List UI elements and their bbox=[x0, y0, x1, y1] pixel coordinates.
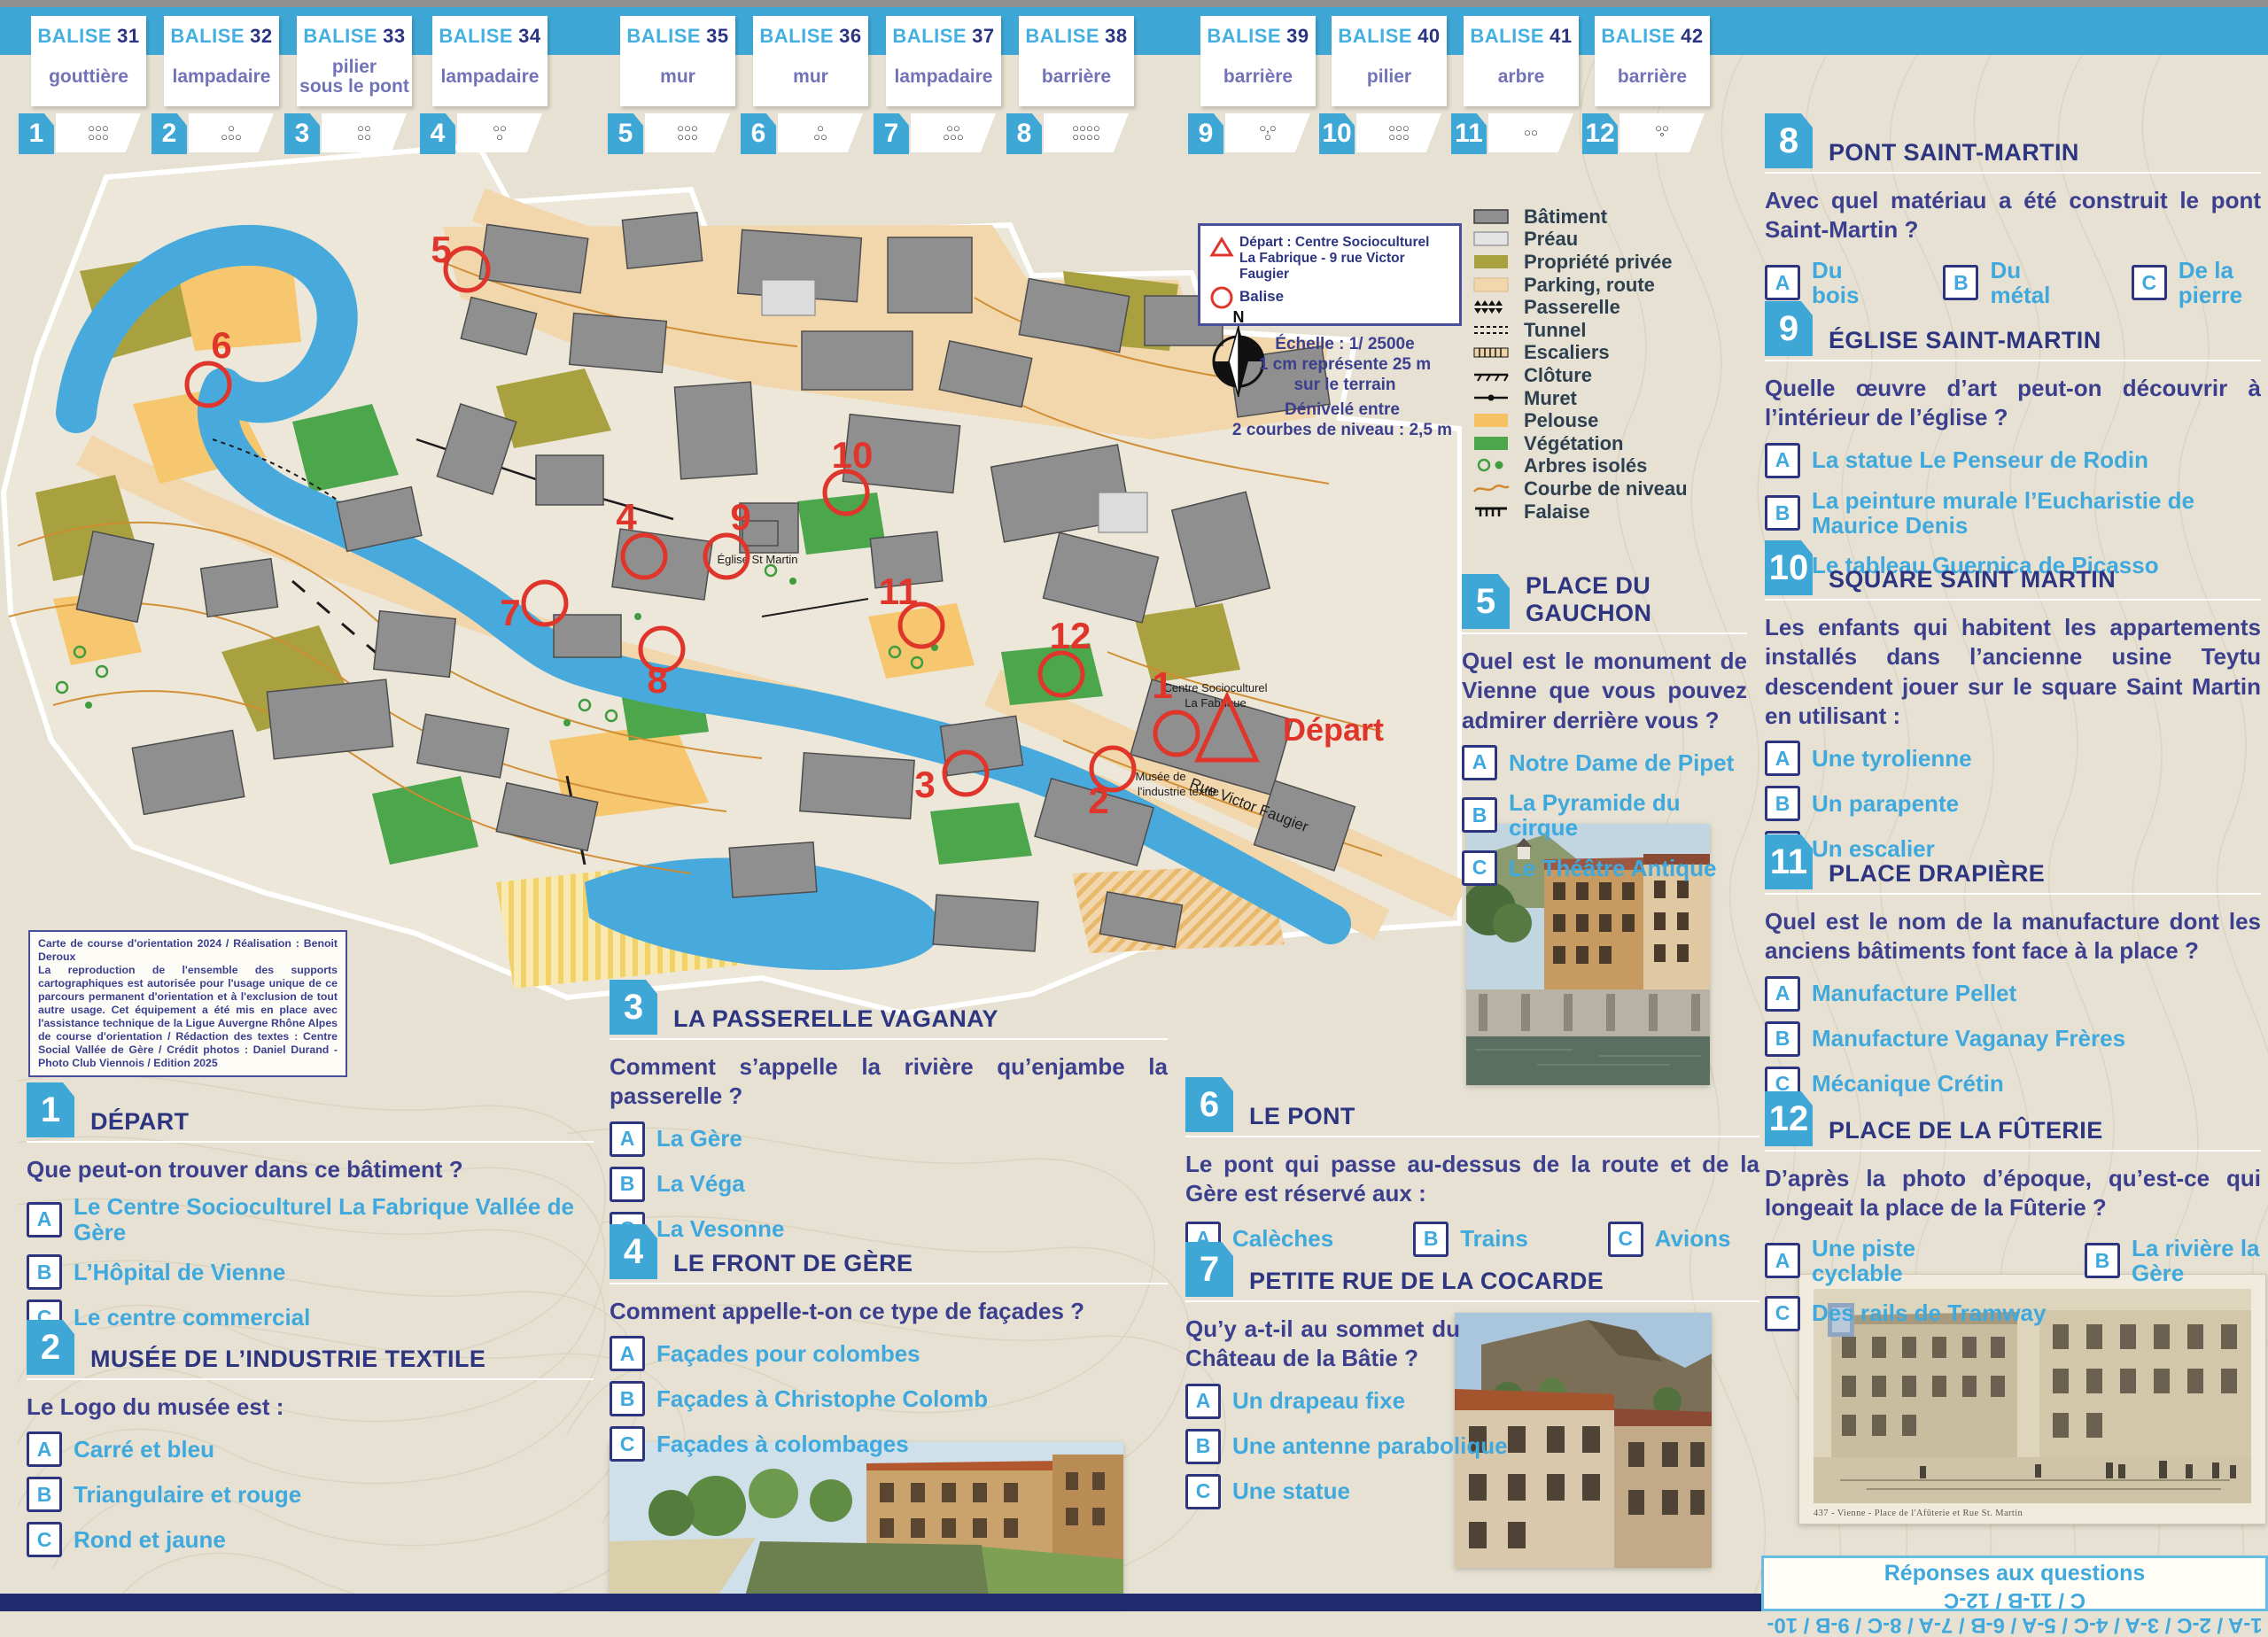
balise-badge-number: 2 bbox=[151, 113, 187, 154]
control-number: 1 bbox=[1152, 664, 1172, 706]
legend-swatch-icon bbox=[1472, 390, 1511, 407]
map-credits: Carte de course d'orientation 2024 / Réa… bbox=[28, 930, 347, 1077]
answer-option: B Un parapente bbox=[1765, 786, 2261, 821]
answer-letter-box: A bbox=[1185, 1384, 1221, 1419]
legend-swatch-icon bbox=[1472, 344, 1511, 361]
question-header: 10 SQUARE SAINT MARTIN bbox=[1765, 540, 2261, 595]
control-number: 3 bbox=[914, 764, 935, 805]
question-text: Qu’y a-t-il au sommet du Château de la B… bbox=[1185, 1315, 1460, 1374]
legend-label: Tunnel bbox=[1524, 319, 1586, 342]
legend-label: Escaliers bbox=[1524, 341, 1610, 364]
answer-letter-box: C bbox=[1462, 850, 1497, 886]
balise-card-header: BALISE33 bbox=[303, 25, 405, 48]
legend-row: Propriété privée bbox=[1472, 251, 1688, 274]
question-answers: A Carré et bleu B Triangulaire et rouge … bbox=[27, 1431, 594, 1557]
legend-swatch-icon bbox=[1472, 253, 1511, 271]
answers-box-line: 1-A / 2-C / 3-A / 4-C / 5-A / 6-B / 7-A … bbox=[1764, 1587, 2265, 1637]
question-text: Quel est le monument de Vienne que vous … bbox=[1462, 647, 1747, 735]
legend-label: Végétation bbox=[1524, 432, 1623, 455]
balise-card: BALISE37 lampadaire bbox=[886, 16, 1001, 106]
balise-number: 36 bbox=[839, 25, 861, 47]
balise-word: BALISE bbox=[170, 25, 245, 47]
balise-description: arbre bbox=[1498, 48, 1545, 106]
map-label-eglise: Église St Martin bbox=[717, 553, 797, 566]
balise-badge: 7 ○○ ○○○ bbox=[874, 113, 996, 154]
legend-label: Parking, route bbox=[1524, 274, 1655, 297]
balise-card-unit: BALISE37 lampadaire 7 ○○ ○○○ bbox=[886, 16, 1001, 106]
question-number-tag: 4 bbox=[610, 1224, 657, 1279]
question-number-tag: 8 bbox=[1765, 113, 1813, 168]
answer-letter-box: A bbox=[27, 1202, 62, 1237]
control-symbol-icon: ○○○○ ○○○○ bbox=[1044, 113, 1129, 152]
start-legend-depart: Départ : Centre Socioculturel La Fabriqu… bbox=[1239, 235, 1450, 282]
legend-swatch-icon bbox=[1472, 276, 1511, 294]
question-text: Le pont qui passe au-dessus de la route … bbox=[1185, 1150, 1759, 1209]
legend-label: Arbres isolés bbox=[1524, 454, 1647, 477]
control-symbol-icon: ○○ bbox=[1488, 113, 1573, 152]
question-number-tag: 6 bbox=[1185, 1077, 1233, 1132]
map-label-centre-1: Centre Socioculturel bbox=[1163, 681, 1267, 694]
legend-swatch-icon bbox=[1472, 480, 1511, 498]
map-scale-text: Échelle : 1/ 2500e 1 cm représente 25 m … bbox=[1256, 335, 1433, 395]
map-denivele-text: Dénivelé entre 2 courbes de niveau : 2,5… bbox=[1231, 400, 1453, 441]
question-text: Comment appelle-t-on ce type de façades … bbox=[610, 1297, 1168, 1326]
control-symbol-icon: ○○○ ○○○ bbox=[645, 113, 730, 152]
balise-card-header: BALISE36 bbox=[759, 25, 861, 48]
control-symbol-icon: ○○○ ○○○ bbox=[56, 113, 141, 152]
balise-badge-number: 1 bbox=[19, 113, 54, 154]
answer-label: Le Centre Socioculturel La Fabrique Vall… bbox=[74, 1194, 594, 1245]
answer-option: B La Pyramide du cirque bbox=[1462, 790, 1747, 841]
question-title: PLACE DRAPIÈRE bbox=[1829, 860, 2045, 888]
legend-swatch-icon bbox=[1472, 367, 1511, 384]
control-symbol-icon: ○ ○○○ bbox=[189, 113, 274, 152]
answer-option: B Façades à Christophe Colomb bbox=[610, 1381, 1168, 1416]
question-block-6: 6 LE PONT Le pont qui passe au-dessus de… bbox=[1185, 1077, 1759, 1257]
start-label: Départ bbox=[1283, 711, 1384, 748]
balise-word: BALISE bbox=[1338, 25, 1412, 47]
question-title: ÉGLISE SAINT-MARTIN bbox=[1829, 327, 2101, 354]
legend-row: Muret bbox=[1472, 387, 1688, 410]
divider bbox=[1185, 1300, 1759, 1302]
question-title: DÉPART bbox=[90, 1108, 189, 1136]
control-number: 9 bbox=[730, 496, 750, 538]
balise-word: BALISE bbox=[1470, 25, 1544, 47]
answer-label: Rond et jaune bbox=[74, 1527, 226, 1553]
divider bbox=[610, 1038, 1168, 1040]
control-symbol-icon: ○○ ○○ bbox=[322, 113, 407, 152]
map-label-musee-1: Musée de bbox=[1135, 770, 1185, 783]
question-text: Comment s’appelle la rivière qu’enjambe … bbox=[610, 1052, 1168, 1112]
balise-card-unit: BALISE34 lampadaire 4 ○○ ○ bbox=[432, 16, 548, 106]
divider bbox=[1765, 172, 2261, 174]
balise-number: 38 bbox=[1105, 25, 1127, 47]
answer-letter-box: A bbox=[1765, 976, 1800, 1012]
balise-badge: 11 ○○ bbox=[1451, 113, 1573, 154]
answer-letter-box: A bbox=[610, 1121, 645, 1157]
balise-badge-number: 9 bbox=[1188, 113, 1223, 154]
question-block-10: 10 SQUARE SAINT MARTIN Les enfants qui h… bbox=[1765, 540, 2261, 866]
legend-swatch-icon bbox=[1472, 230, 1511, 248]
answer-letter-box: A bbox=[1765, 1243, 1800, 1278]
legend-row: Végétation bbox=[1472, 432, 1688, 455]
question-block-2: 2 MUSÉE DE L’INDUSTRIE TEXTILE Le Logo d… bbox=[27, 1320, 594, 1557]
answers-box-title: Réponses aux questions bbox=[1764, 1561, 2265, 1587]
legend-label: Courbe de niveau bbox=[1524, 477, 1688, 500]
start-legend-balise: Balise bbox=[1239, 283, 1284, 306]
balise-card-header: BALISE32 bbox=[170, 25, 272, 48]
legend-row: Falaise bbox=[1472, 500, 1688, 524]
balise-badge: 1 ○○○ ○○○ bbox=[19, 113, 141, 154]
answer-option: A Un drapeau fixe bbox=[1185, 1384, 1759, 1419]
balise-badge: 6 ○ ○○ bbox=[741, 113, 863, 154]
answer-letter-box: A bbox=[27, 1431, 62, 1467]
control-symbol-icon: ○○○ ○○○ bbox=[1356, 113, 1441, 152]
answer-letter-box: A bbox=[1765, 265, 1800, 300]
question-text: Les enfants qui habitent les appartement… bbox=[1765, 613, 2261, 731]
question-header: 1 DÉPART bbox=[27, 1082, 594, 1137]
question-title: PONT SAINT-MARTIN bbox=[1829, 139, 2079, 167]
balise-description: gouttière bbox=[49, 48, 128, 106]
divider bbox=[1765, 599, 2261, 601]
legend-label: Muret bbox=[1524, 387, 1577, 410]
balise-card-unit: BALISE35 mur 5 ○○○ ○○○ bbox=[620, 16, 735, 106]
control-number: 10 bbox=[832, 434, 874, 476]
answer-option: C Rond et jaune bbox=[27, 1522, 594, 1557]
question-title: MUSÉE DE L’INDUSTRIE TEXTILE bbox=[90, 1346, 485, 1373]
question-number-tag: 12 bbox=[1765, 1091, 1813, 1146]
balise-word: BALISE bbox=[439, 25, 513, 47]
balise-description: barrière bbox=[1618, 48, 1687, 106]
control-number: 4 bbox=[616, 496, 637, 538]
question-header: 12 PLACE DE LA FÛTERIE bbox=[1765, 1091, 2261, 1146]
answer-letter-box: B bbox=[610, 1167, 645, 1202]
question-title: SQUARE SAINT MARTIN bbox=[1829, 566, 2116, 594]
balise-word: BALISE bbox=[759, 25, 834, 47]
answer-label: Une piste cyclable bbox=[1812, 1236, 1952, 1286]
question-answers: A Un drapeau fixe B Une antenne paraboli… bbox=[1185, 1384, 1759, 1509]
answer-letter-box: B bbox=[1765, 1021, 1800, 1057]
balise-card: BALISE42 barrière bbox=[1595, 16, 1710, 106]
question-block-12: 12 PLACE DE LA FÛTERIE D’après la photo … bbox=[1765, 1091, 2261, 1331]
question-block-1: 1 DÉPART Que peut-on trouver dans ce bât… bbox=[27, 1082, 594, 1335]
legend-row: Bâtiment bbox=[1472, 206, 1688, 229]
answer-option: B Manufacture Vaganay Frères bbox=[1765, 1021, 2261, 1057]
question-title: PETITE RUE DE LA COCARDE bbox=[1249, 1268, 1604, 1295]
map-legend: Bâtiment Préau Propriété privée Parking,… bbox=[1472, 206, 1688, 523]
question-number-tag: 10 bbox=[1765, 540, 1813, 595]
balise-card-unit: BALISE39 barrière 9 ○,○ ○ bbox=[1200, 16, 1316, 106]
balise-badge-number: 10 bbox=[1319, 113, 1355, 154]
answer-label: La statue Le Penseur de Rodin bbox=[1812, 447, 2148, 473]
answer-option: A Le Centre Socioculturel La Fabrique Va… bbox=[27, 1194, 594, 1245]
answer-label: Triangulaire et rouge bbox=[74, 1482, 301, 1508]
question-number-tag: 7 bbox=[1185, 1242, 1233, 1297]
balise-number: 39 bbox=[1286, 25, 1309, 47]
answer-letter-box: B bbox=[1765, 495, 1800, 531]
divider bbox=[1765, 1150, 2261, 1152]
answer-label: La Gère bbox=[656, 1126, 742, 1152]
answer-label: Manufacture Vaganay Frères bbox=[1812, 1026, 2125, 1051]
balise-word: BALISE bbox=[626, 25, 701, 47]
legend-row: Pelouse bbox=[1472, 409, 1688, 432]
balise-number: 42 bbox=[1681, 25, 1703, 47]
question-number-tag: 11 bbox=[1765, 834, 1813, 889]
answer-letter-box: B bbox=[27, 1477, 62, 1512]
balise-number: 31 bbox=[117, 25, 139, 47]
answer-option: C Une statue bbox=[1185, 1474, 1759, 1509]
answer-label: Façades à Christophe Colomb bbox=[656, 1386, 988, 1412]
balise-card: BALISE35 mur bbox=[620, 16, 735, 106]
balise-description: pilier sous le pont bbox=[299, 48, 409, 106]
control-symbol-icon: ○ ○○ bbox=[778, 113, 863, 152]
answer-label: Le Théâtre Antique bbox=[1509, 856, 1717, 881]
balise-badge: 8 ○○○○ ○○○○ bbox=[1006, 113, 1129, 154]
balise-badge: 9 ○,○ ○ bbox=[1188, 113, 1310, 154]
answer-option: B Triangulaire et rouge bbox=[27, 1477, 594, 1512]
question-header: 7 PETITE RUE DE LA COCARDE bbox=[1185, 1242, 1759, 1297]
balise-number: 35 bbox=[706, 25, 728, 47]
answer-label: La peinture murale l’Eucharistie de Maur… bbox=[1812, 488, 2261, 539]
answer-letter-box: B bbox=[1765, 786, 1800, 821]
answer-option: A La Gère bbox=[610, 1121, 1168, 1157]
answer-label: Façades pour colombes bbox=[656, 1341, 920, 1367]
control-symbol-icon: ○○ ○○○ bbox=[911, 113, 996, 152]
legend-swatch-icon bbox=[1472, 457, 1511, 475]
answer-label: Notre Dame de Pipet bbox=[1509, 750, 1734, 776]
answers-box: Réponses aux questions 1-A / 2-C / 3-A /… bbox=[1761, 1556, 2268, 1611]
question-header: 4 LE FRONT DE GÈRE bbox=[610, 1224, 1168, 1279]
balise-card-header: BALISE34 bbox=[439, 25, 540, 48]
answer-label: Un parapente bbox=[1812, 791, 1959, 817]
answer-letter-box: B bbox=[1462, 797, 1497, 833]
control-number: 11 bbox=[879, 570, 918, 612]
balise-number: 40 bbox=[1417, 25, 1440, 47]
balise-number: 34 bbox=[518, 25, 540, 47]
question-number-tag: 2 bbox=[27, 1320, 74, 1375]
balise-badge-number: 8 bbox=[1006, 113, 1042, 154]
balise-badge: 2 ○ ○○○ bbox=[151, 113, 274, 154]
answer-label: Une tyrolienne bbox=[1812, 746, 1972, 772]
question-header: 8 PONT SAINT-MARTIN bbox=[1765, 113, 2261, 168]
control-symbol-icon: ○○ ○ bbox=[457, 113, 542, 152]
balise-card-header: BALISE41 bbox=[1470, 25, 1572, 48]
map-label-centre-2: La Fabrique bbox=[1184, 696, 1246, 710]
balise-badge-number: 11 bbox=[1451, 113, 1487, 154]
legend-label: Pelouse bbox=[1524, 409, 1598, 432]
answer-option: C Des rails de Tramway bbox=[1765, 1296, 2261, 1331]
balise-badge: 10 ○○○ ○○○ bbox=[1319, 113, 1441, 154]
answer-option: B La peinture murale l’Eucharistie de Ma… bbox=[1765, 488, 2261, 539]
balise-number: 32 bbox=[250, 25, 272, 47]
answer-letter-box: A bbox=[1462, 745, 1497, 780]
balise-card-header: BALISE35 bbox=[626, 25, 728, 48]
legend-row: Préau bbox=[1472, 229, 1688, 252]
answer-letter-box: B bbox=[2085, 1243, 2120, 1278]
balise-number: 41 bbox=[1550, 25, 1572, 47]
balise-description: lampadaire bbox=[441, 48, 540, 106]
answer-label: La Pyramide du cirque bbox=[1509, 790, 1747, 841]
balise-card: BALISE34 lampadaire bbox=[432, 16, 548, 106]
question-text: Quel est le nom de la manufacture dont l… bbox=[1765, 907, 2261, 966]
balise-number: 33 bbox=[383, 25, 405, 47]
answer-letter-box: A bbox=[610, 1336, 645, 1371]
postcard-caption: 437 - Vienne - Place de l'Afûterie et Ru… bbox=[1814, 1509, 2251, 1518]
legend-row: Passerelle bbox=[1472, 296, 1688, 319]
answer-label: L’Hôpital de Vienne bbox=[74, 1260, 285, 1285]
answer-option: A Une tyrolienne bbox=[1765, 741, 2261, 776]
photo-front-de-gere bbox=[610, 1442, 1123, 1606]
question-text: Que peut-on trouver dans ce bâtiment ? bbox=[27, 1155, 594, 1184]
balise-card: BALISE33 pilier sous le pont bbox=[297, 16, 412, 106]
legend-label: Préau bbox=[1524, 228, 1578, 251]
question-header: 6 LE PONT bbox=[1185, 1077, 1759, 1132]
balise-card-unit: BALISE33 pilier sous le pont 3 ○○ ○○ bbox=[297, 16, 412, 106]
answer-label: Façades à colombages bbox=[656, 1431, 909, 1457]
control-number: 2 bbox=[1088, 780, 1108, 821]
balise-description: mur bbox=[660, 48, 695, 106]
balise-card-header: BALISE38 bbox=[1025, 25, 1127, 48]
control-number: 7 bbox=[500, 592, 520, 633]
balise-card: BALISE40 pilier bbox=[1332, 16, 1447, 106]
divider bbox=[1765, 360, 2261, 361]
question-title: LA PASSERELLE VAGANAY bbox=[673, 1005, 998, 1033]
divider bbox=[1185, 1136, 1759, 1137]
legend-label: Passerelle bbox=[1524, 296, 1620, 319]
divider bbox=[27, 1141, 594, 1143]
question-number-tag: 5 bbox=[1462, 574, 1510, 629]
divider bbox=[27, 1378, 594, 1380]
balise-card: BALISE38 barrière bbox=[1019, 16, 1134, 106]
balise-description: pilier bbox=[1367, 48, 1411, 106]
answer-option: B La rivière la Gère bbox=[2085, 1236, 2261, 1286]
question-block-7: 7 PETITE RUE DE LA COCARDE Qu’y a-t-il a… bbox=[1185, 1242, 1759, 1509]
balise-card-header: BALISE40 bbox=[1338, 25, 1440, 48]
answer-option: A La statue Le Penseur de Rodin bbox=[1765, 443, 2261, 478]
question-title: PLACE DE LA FÛTERIE bbox=[1829, 1117, 2103, 1144]
balise-description: lampadaire bbox=[895, 48, 993, 106]
balise-description: lampadaire bbox=[173, 48, 271, 106]
control-symbol-icon: ○○ ° bbox=[1619, 113, 1705, 152]
balise-badge-number: 6 bbox=[741, 113, 776, 154]
balise-card-unit: BALISE40 pilier 10 ○○○ ○○○ bbox=[1332, 16, 1447, 106]
answer-letter-box: B bbox=[27, 1254, 62, 1290]
answer-letter-box: C bbox=[1185, 1474, 1221, 1509]
question-number-tag: 1 bbox=[27, 1082, 74, 1137]
answer-option: C Le Théâtre Antique bbox=[1462, 850, 1747, 886]
legend-label: Propriété privée bbox=[1524, 251, 1673, 274]
legend-label: Falaise bbox=[1524, 500, 1590, 524]
balise-card: BALISE41 arbre bbox=[1464, 16, 1579, 106]
compass-n-label: N bbox=[1233, 308, 1245, 326]
question-header: 9 ÉGLISE SAINT-MARTIN bbox=[1765, 301, 2261, 356]
legend-row: Courbe de niveau bbox=[1472, 477, 1688, 500]
answer-letter-box: A bbox=[1765, 443, 1800, 478]
answer-label: Une statue bbox=[1232, 1478, 1350, 1504]
balise-card: BALISE36 mur bbox=[753, 16, 868, 106]
balise-word: BALISE bbox=[1025, 25, 1099, 47]
balise-card-unit: BALISE41 arbre 11 ○○ bbox=[1464, 16, 1579, 106]
answer-label: Manufacture Pellet bbox=[1812, 981, 2016, 1006]
balise-card-unit: BALISE31 gouttière 1 ○○○ ○○○ bbox=[31, 16, 146, 106]
question-text: D’après la photo d’époque, qu’est-ce qui… bbox=[1765, 1164, 2261, 1223]
control-number: 8 bbox=[647, 659, 667, 701]
balise-card-unit: BALISE36 mur 6 ○ ○○ bbox=[753, 16, 868, 106]
answer-option: C Façades à colombages bbox=[610, 1426, 1168, 1462]
question-header: 5 PLACE DU GAUCHON bbox=[1462, 572, 1747, 629]
balise-badge: 5 ○○○ ○○○ bbox=[608, 113, 730, 154]
answer-letter-box: C bbox=[2132, 265, 2167, 300]
answer-option: B La Véga bbox=[610, 1167, 1168, 1202]
balise-description: barrière bbox=[1223, 48, 1293, 106]
legend-row: Arbres isolés bbox=[1472, 455, 1688, 478]
control-number: 6 bbox=[211, 324, 231, 366]
legend-row: Parking, route bbox=[1472, 274, 1688, 297]
question-answers: A Façades pour colombes B Façades à Chri… bbox=[610, 1336, 1168, 1462]
balise-card-header: BALISE31 bbox=[37, 25, 139, 48]
start-triangle-icon bbox=[1209, 235, 1239, 262]
balise-badge: 12 ○○ ° bbox=[1582, 113, 1705, 154]
balise-card: BALISE31 gouttière bbox=[31, 16, 146, 106]
answer-letter-box: C bbox=[610, 1426, 645, 1462]
answer-label: Un drapeau fixe bbox=[1232, 1388, 1405, 1414]
legend-swatch-icon bbox=[1472, 208, 1511, 226]
legend-swatch-icon bbox=[1472, 435, 1511, 453]
question-block-5: 5 PLACE DU GAUCHON Quel est le monument … bbox=[1462, 572, 1747, 886]
answer-option: A Manufacture Pellet bbox=[1765, 976, 2261, 1012]
question-answers: A Le Centre Socioculturel La Fabrique Va… bbox=[27, 1194, 594, 1335]
legend-swatch-icon bbox=[1472, 299, 1511, 316]
answer-letter-box: C bbox=[27, 1522, 62, 1557]
question-title: LE FRONT DE GÈRE bbox=[673, 1250, 913, 1277]
balise-card-unit: BALISE42 barrière 12 ○○ ° bbox=[1595, 16, 1710, 106]
balise-badge: 4 ○○ ○ bbox=[420, 113, 542, 154]
balise-description: mur bbox=[793, 48, 828, 106]
legend-label: Clôture bbox=[1524, 364, 1592, 387]
balise-badge-number: 4 bbox=[420, 113, 455, 154]
control-number: 5 bbox=[431, 229, 451, 270]
balise-card: BALISE39 barrière bbox=[1200, 16, 1316, 106]
balise-card-header: BALISE39 bbox=[1207, 25, 1309, 48]
balise-badge-number: 12 bbox=[1582, 113, 1618, 154]
legend-row: Clôture bbox=[1472, 364, 1688, 387]
question-title: LE PONT bbox=[1249, 1103, 1355, 1130]
balise-card-unit: BALISE38 barrière 8 ○○○○ ○○○○ bbox=[1019, 16, 1134, 106]
answers-row: A Une piste cyclable B La rivière la Gèr… bbox=[1765, 1236, 2261, 1286]
answer-label: La Véga bbox=[656, 1171, 745, 1197]
balise-word: BALISE bbox=[1207, 25, 1281, 47]
question-block-11: 11 PLACE DRAPIÈRE Quel est le nom de la … bbox=[1765, 834, 2261, 1102]
legend-row: Escaliers bbox=[1472, 342, 1688, 365]
answer-option: A Une piste cyclable bbox=[1765, 1236, 1952, 1286]
question-block-3: 3 LA PASSERELLE VAGANAY Comment s’appell… bbox=[610, 980, 1168, 1247]
answer-option: A Façades pour colombes bbox=[610, 1336, 1168, 1371]
question-title: PLACE DU GAUCHON bbox=[1526, 572, 1747, 627]
balise-badge-number: 5 bbox=[608, 113, 643, 154]
legend-swatch-icon bbox=[1472, 503, 1511, 521]
answer-option: B Une antenne parabolique bbox=[1185, 1429, 1759, 1464]
answer-option: A Notre Dame de Pipet bbox=[1462, 745, 1747, 780]
answer-letter-box: C bbox=[1765, 1296, 1800, 1331]
question-header: 11 PLACE DRAPIÈRE bbox=[1765, 834, 2261, 889]
divider bbox=[610, 1283, 1168, 1284]
answer-letter-box: A bbox=[1765, 741, 1800, 776]
question-header: 2 MUSÉE DE L’INDUSTRIE TEXTILE bbox=[27, 1320, 594, 1375]
answer-label: Une antenne parabolique bbox=[1232, 1433, 1508, 1459]
legend-swatch-icon bbox=[1472, 322, 1511, 339]
balise-card-header: BALISE37 bbox=[892, 25, 994, 48]
balise-word: BALISE bbox=[892, 25, 967, 47]
